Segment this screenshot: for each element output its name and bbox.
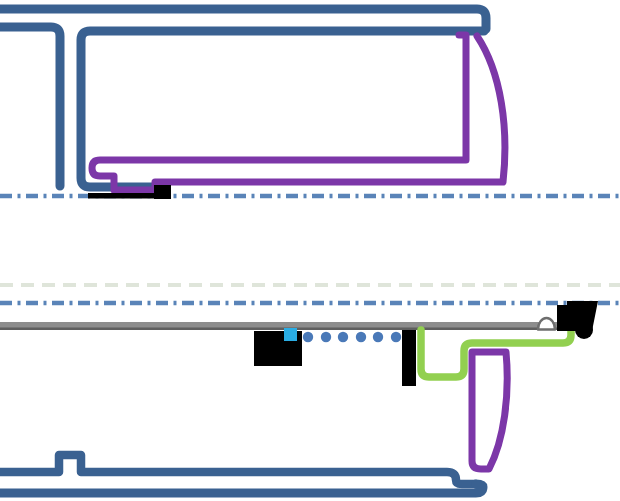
fastener-dot-6 [391, 332, 401, 342]
top-rail-outline [0, 9, 486, 29]
right-hardware-roller [575, 321, 593, 339]
fastener-dot-4 [356, 332, 366, 342]
technical-drawing-page [0, 0, 620, 501]
cyan-marker-square [284, 328, 297, 341]
bottom-panel-bar [0, 484, 483, 493]
roller-dome [538, 318, 555, 330]
bottom-panel-upper-edge [0, 455, 476, 484]
fastener-dot-1 [303, 332, 313, 342]
vertical-hardware-bar [402, 330, 416, 386]
fastener-dot-5 [373, 332, 383, 342]
left-panel-outline [0, 27, 60, 186]
technical-drawing-canvas [0, 0, 620, 501]
upper-seal-outline [92, 35, 505, 190]
upper-hardware-block [154, 185, 171, 199]
lower-seal-outline [472, 352, 507, 469]
fastener-dot-3 [338, 332, 348, 342]
upper-gasket-strip [88, 193, 157, 199]
fastener-dot-2 [321, 332, 331, 342]
inner-panel-outline [81, 31, 484, 187]
